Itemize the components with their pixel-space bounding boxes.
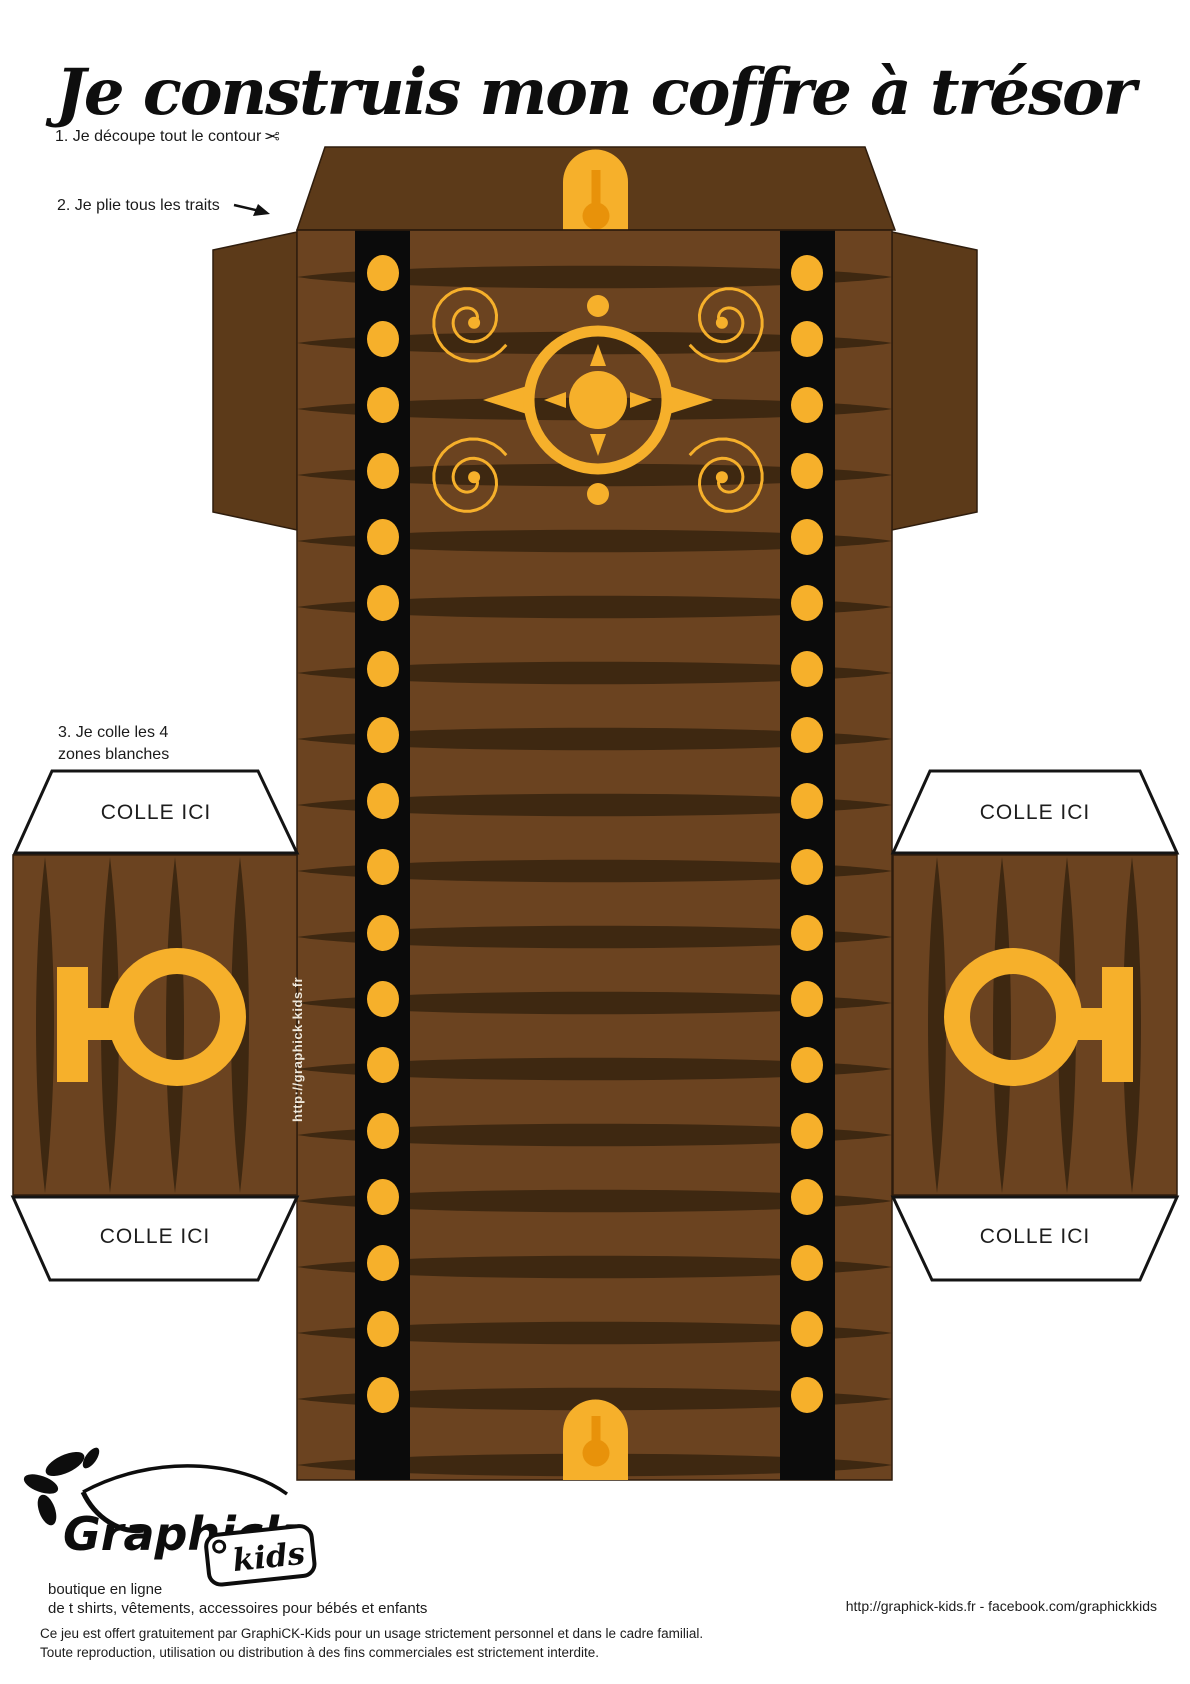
footer-legal-line1: Ce jeu est offert gratuitement par Graph…: [40, 1626, 703, 1641]
fold-arrow-icon: [234, 204, 270, 216]
glue-tab-label-left-top: COLLE ICI: [15, 773, 297, 853]
vertical-site-url: http://graphick-kids.fr: [290, 892, 305, 1122]
glue-tab-label-left-bottom: COLLE ICI: [13, 1197, 297, 1277]
top-clasp-tab: [563, 150, 628, 231]
logo-kids-tag: kids: [205, 1525, 316, 1586]
logo-kids-text: kids: [231, 1536, 307, 1579]
footer-boutique-line1: boutique en ligne: [48, 1581, 162, 1598]
glue-tab-label-right-top: COLLE ICI: [893, 773, 1177, 853]
footer-boutique-line2: de t shirts, vêtements, accessoires pour…: [48, 1600, 427, 1617]
brand-logo: Graphick kids: [21, 1445, 315, 1586]
bottom-clasp-tab: [563, 1400, 628, 1481]
footer-links: http://graphick-kids.fr - facebook.com/g…: [500, 1598, 1157, 1614]
footer-legal-line2: Toute reproduction, utilisation ou distr…: [40, 1645, 599, 1660]
craft-sheet-page: Je construis mon coffre à trésor 1. Je d…: [0, 0, 1190, 1684]
glue-tab-label-right-bottom: COLLE ICI: [893, 1197, 1177, 1277]
